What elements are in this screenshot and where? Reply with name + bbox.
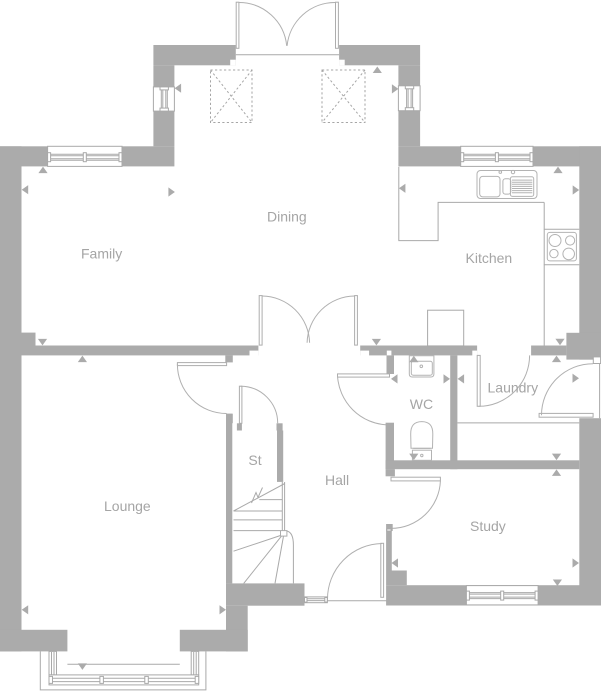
- svg-text:Lounge: Lounge: [104, 498, 151, 514]
- svg-text:Kitchen: Kitchen: [466, 250, 513, 266]
- svg-text:Hall: Hall: [325, 472, 349, 488]
- svg-text:Family: Family: [81, 246, 122, 262]
- svg-text:Laundry: Laundry: [488, 379, 539, 395]
- svg-text:Dining: Dining: [267, 208, 307, 224]
- svg-text:WC: WC: [410, 396, 433, 412]
- svg-text:Study: Study: [470, 518, 506, 534]
- svg-text:St: St: [248, 452, 261, 468]
